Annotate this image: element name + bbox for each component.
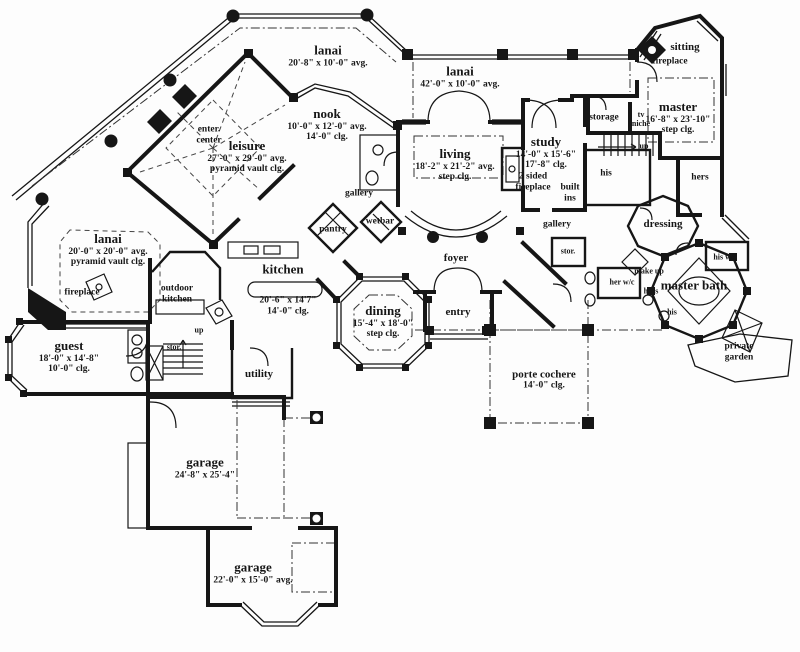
label-his-closet: his [600,169,612,180]
label-his-bath: his [667,309,677,318]
label-hers-bath: hers [644,288,659,297]
room-label-foyer: foyer [444,252,468,264]
label-fireplace-sitting: fireplace [652,57,687,68]
label-fireplace-left: fireplace [64,288,99,299]
label-storage: storage [589,113,619,124]
label-enter-center: enter. center [196,124,221,145]
room-label-lanai-left: lanai 20'-0" x 20'-0" avg. pyramid vault… [68,232,147,268]
label-built-ins: built ins [560,182,579,203]
label-his-wc: his w/c [713,254,736,263]
label-hers-closet: hers [691,173,708,184]
room-label-lanai-wide: lanai 42'-0" x 10'-0" avg. [420,64,499,89]
room-label-utility: utility [245,368,273,380]
room-label-guest: guest 18'-0" x 14'-8" 10'-0" clg. [39,339,99,375]
room-label-study: study 14'-0" x 15'-6" 17'-8" clg. [516,135,576,171]
label-up-left: up [195,327,204,336]
room-label-entry: entry [445,306,470,318]
room-label-nook: nook 10'-0" x 12'-0" avg. 14'-0" clg. [287,107,366,143]
label-make-up: make up [634,268,664,277]
label-gallery-right: gallery [543,220,571,231]
label-two-sided-fireplace: 2 sided fireplace [515,171,550,192]
room-label-garage-main: garage 24'-8" x 25'-4" [175,455,235,480]
label-up-right: up [640,143,649,152]
label-her-wc: her w/c [610,279,635,288]
room-label-dining: dining 15'-4" x 18'-0" step clg. [353,304,413,340]
label-wetbar: wetbar [366,217,395,228]
room-label-living: living 18'-2" x 21'-2" avg. step clg. [415,147,494,183]
floor-plan-page: lanai 20'-8" x 10'-0" avg. lanai 42'-0" … [0,0,800,652]
label-pantry: pantry [319,225,346,236]
room-label-master: master 16'-8" x 23'-10" step clg. [646,100,711,136]
label-gallery-left: gallery [345,189,373,200]
room-label-porte-cochere: porte cochere 14'-0" clg. [512,369,576,392]
label-tv-niche: tv niche [632,111,650,129]
label-stor-left: stor. [167,344,182,353]
room-label-lanai-top: lanai 20'-8" x 10'-0" avg. [288,43,367,68]
room-label-kitchen: kitchen [262,263,303,278]
room-label-sitting: sitting [670,41,699,53]
room-label-kitchen-dims: 20'-6" x 14'7" 14'-0" clg. [260,295,317,316]
room-label-garage-lower: garage 22'-0" x 15'-0" avg. [213,560,292,585]
label-outdoor-kitchen: outdoor kitchen [161,283,193,304]
room-label-dressing: dressing [644,218,683,230]
label-private-garden: private garden [724,341,753,362]
room-label-master-bath: master bath [661,279,728,294]
vault-lines-layer [60,62,285,312]
label-stor-right: stor. [561,248,576,257]
